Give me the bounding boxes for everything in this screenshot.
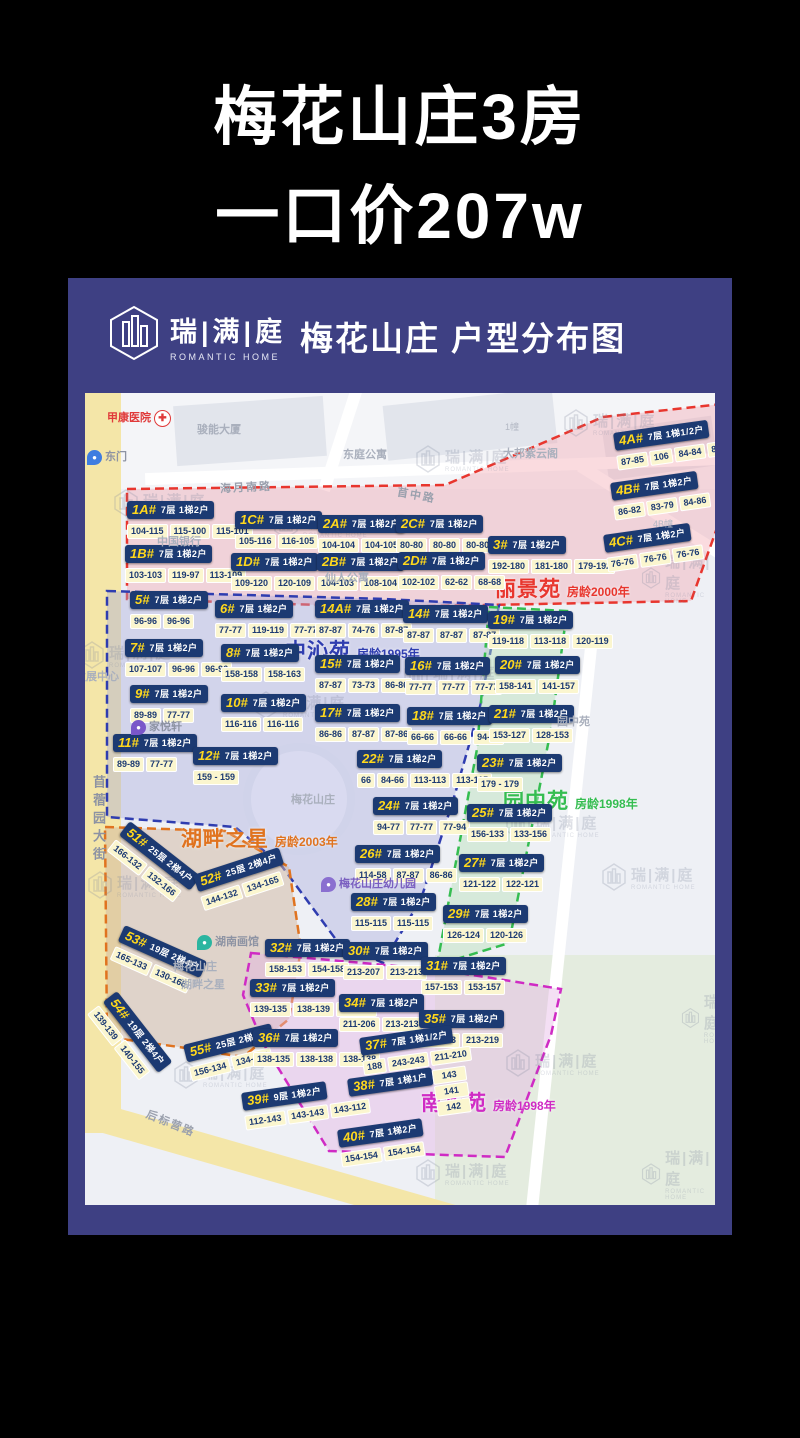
poster-title-line1: 梅花山庄3房 (0, 68, 800, 167)
building-area-cell: 120-119 (572, 634, 613, 649)
map-pin-icon: ● (131, 720, 146, 735)
building-pill: 29#7层 1梯2户 (443, 905, 528, 923)
building-area-cell: 181-180 (531, 559, 572, 574)
building-label: 11#7层 1梯2户89-8977-77 (113, 734, 197, 772)
building-pill: 18#7层 1梯2户 (407, 707, 492, 725)
building-info: 7层 1梯2户 (356, 602, 404, 615)
building-label: 34#7层 1梯2户211-206213-213 (339, 994, 425, 1032)
building-area-cell: 119-97 (168, 568, 204, 583)
building-pill: 36#7层 1梯2户 (253, 1029, 338, 1047)
building-area-cells: 107-10796-9696-96 (125, 659, 234, 677)
building-area-cell: 157-153 (421, 980, 462, 995)
building-label: 19#7层 1梯2户119-118113-118120-119 (488, 611, 615, 649)
building-area-cell: 138-138 (296, 1052, 337, 1067)
building-pill: 32#7层 1梯2户 (265, 939, 350, 957)
building-info: 7层 1梯2户 (475, 907, 523, 920)
screenshot-root: { "page": { "title_line1": "梅花山庄3房", "ti… (0, 0, 800, 1438)
building-number: 26# (360, 846, 382, 861)
building-area-cell: 103-103 (125, 568, 166, 583)
building-info: 7层 1梯2户 (269, 513, 317, 526)
building-area-cell: 121-122 (459, 877, 500, 892)
building-label: 31#7层 1梯2户157-153153-157 (421, 957, 507, 995)
building-number: 1D# (236, 554, 260, 569)
building-pill: 11#7层 1梯2户 (113, 734, 197, 752)
building-area-cell: 119-118 (488, 634, 528, 649)
poi-pin: ●家悦轩 (131, 718, 182, 735)
building-area-cells: 213-207213-213 (343, 962, 429, 980)
building-number: 20# (500, 657, 522, 672)
building-number: 30# (348, 943, 370, 958)
building-pill: 31#7层 1梯2户 (421, 957, 506, 975)
building-area-cell: 96-96 (168, 662, 199, 677)
building-area-cells: 77-7777-7777-77 (405, 677, 504, 695)
building-area-cells: 115-115115-115 (351, 913, 436, 931)
building-area-cell: 77-94 (439, 820, 470, 835)
building-pill: 2C#7层 1梯2户 (396, 515, 483, 533)
building-info: 7层 1梯2户 (453, 959, 501, 972)
building-pill: 5#7层 1梯2户 (130, 591, 208, 609)
building-area-cell: 87-87 (315, 678, 346, 693)
building-area-cell: 66-66 (440, 730, 471, 745)
building-label: 15#7层 1梯2户87-8773-7386-86 (315, 655, 414, 693)
building-area-cell: 115-115 (351, 916, 391, 931)
building-number: 29# (448, 906, 470, 921)
building-info: 7层 1梯2户 (285, 1031, 333, 1044)
building-info: 7层 1梯2户 (491, 856, 539, 869)
building-label: 28#7层 1梯2户115-115115-115 (351, 893, 436, 931)
building-area-cell: 138-139 (293, 1002, 334, 1017)
building-area-cell: 126-124 (443, 928, 484, 943)
poi-text: 1幢 (505, 420, 519, 433)
brand-logo: 瑞|满|庭 ROMANTIC HOME (108, 304, 286, 367)
building-area-cell: 68-68 (474, 575, 505, 590)
building-area-cell: 84-66 (377, 773, 408, 788)
building-number: 7# (130, 640, 144, 655)
building-number: 11# (118, 735, 139, 750)
building-area-cell: 87-87 (436, 628, 467, 643)
building-area-cell: 77-77 (215, 623, 246, 638)
building-area-cell: 116-105 (278, 534, 319, 549)
building-number: 27# (464, 855, 486, 870)
building-number: 18# (412, 708, 434, 723)
building-info: 7层 1梯2户 (509, 756, 557, 769)
building-label: 25#7层 1梯2户156-133133-156 (467, 804, 553, 842)
building-number: 55# (188, 1040, 213, 1060)
building-number: 5# (135, 592, 149, 607)
building-area-cell: 66-66 (407, 730, 438, 745)
building-area-cell: 141-157 (538, 679, 579, 694)
building-info: 7层 1梯2户 (375, 944, 423, 957)
building-info: 7层 1梯2户 (144, 736, 192, 749)
building-number: 36# (258, 1030, 280, 1045)
building-area-cell: 213-207 (343, 965, 384, 980)
building-area-cells: 179 - 179 (477, 774, 562, 792)
poi-kindergarten: ●梅花山庄幼儿园 (321, 875, 416, 892)
building-pill: 20#7层 1梯2户 (495, 656, 580, 674)
card-header: 瑞|满|庭 ROMANTIC HOME 梅花山庄 户型分布图 (68, 278, 732, 393)
building-number: 21# (494, 706, 516, 721)
building-area-cells: 80-8080-8080-80 (396, 535, 495, 553)
building-number: 12# (198, 748, 220, 763)
building-number: 1A# (132, 502, 156, 517)
building-area-cell: 80-80 (396, 538, 427, 553)
building-info: 7层 1梯2户 (351, 555, 399, 568)
building-area-cells: 143141142 (431, 1065, 473, 1118)
map-pin-icon: ● (87, 450, 102, 465)
building-label: 5#7层 1梯2户96-9696-96 (130, 591, 208, 629)
building-info: 7层 1梯2户 (149, 641, 197, 654)
building-area-cell: 119-119 (248, 623, 288, 638)
poi-pin: ●东门 (87, 448, 127, 465)
building-area-cells: 158-153154-158 (265, 959, 351, 977)
building-label: 24#7层 1梯2户94-7777-7777-94 (373, 797, 472, 835)
poi-label: 梅花山庄幼儿园 (339, 878, 416, 890)
building-number: 35# (424, 1011, 446, 1026)
poi-text: 海月南路 (220, 478, 273, 497)
poi-text: 4B幢 (653, 517, 673, 530)
building-number: 17# (320, 705, 342, 720)
poi-hospital: 甲康医院✚ (107, 409, 171, 427)
building-number: 16# (410, 658, 432, 673)
building-pill: 33#7层 1梯2户 (250, 979, 335, 997)
building-pill: 16#7层 1梯2户 (405, 657, 490, 675)
building-label: 6#7层 1梯2户77-77119-11977-77 (215, 600, 323, 638)
building-area-cells: 126-124120-126 (443, 925, 529, 943)
building-number: 6# (220, 601, 234, 616)
building-area-cells: 104-104104-105 (318, 535, 405, 553)
poi-text: 梅花山庄 (291, 791, 335, 807)
building-info: 7层 1梯2户 (347, 706, 395, 719)
building-area-cell: 139-135 (250, 1002, 291, 1017)
building-number: 24# (378, 798, 400, 813)
building-info: 7层 1梯2户 (389, 752, 437, 765)
building-pill: 23#7层 1梯2户 (477, 754, 562, 772)
building-number: 2B# (322, 554, 346, 569)
building-number: 1C# (240, 512, 264, 527)
poi-label: 家悦轩 (149, 721, 182, 733)
building-number: 10# (226, 695, 248, 710)
building-info: 7层 1梯2户 (265, 555, 313, 568)
building-area-cell: 122-121 (502, 877, 543, 892)
building-info: 7层 1梯2户 (527, 658, 575, 671)
building-pill: 19#7层 1梯2户 (488, 611, 573, 629)
building-info: 7层 1梯2户 (347, 657, 395, 670)
building-pill: 30#7层 1梯2户 (343, 942, 428, 960)
building-area-cells: 103-103119-97113-109 (125, 565, 248, 583)
map-pin-icon: ● (197, 935, 212, 950)
building-area-cells: 116-116116-116 (221, 714, 306, 732)
building-pill: 1C#7层 1梯2户 (235, 511, 322, 529)
building-area-cells: 77-77119-11977-77 (215, 620, 323, 638)
building-area-cell: 96-96 (163, 614, 194, 629)
poi-text: 梅花山庄 (173, 958, 217, 974)
building-number: 22# (362, 751, 384, 766)
community-map: 瑞|满|庭ROMANTIC HOME瑞|满|庭ROMANTIC HOME瑞|满|… (85, 393, 715, 1205)
building-area-cell: 77-77 (146, 757, 177, 772)
region-label-lijingyuan: 丽景苑房龄2000年 (495, 573, 630, 603)
hospital-cross-icon: ✚ (154, 410, 171, 427)
building-area-cells: 109-120120-109 (231, 573, 318, 591)
building-area-cells: 86-8687-8787-86 (315, 724, 414, 742)
building-area-cells: 87-8774-7687-87 (315, 620, 414, 638)
building-area-cell: 80-80 (429, 538, 460, 553)
building-label: 30#7层 1梯2户213-207213-213 (343, 942, 429, 980)
poi-pin: ●湖南画馆 (197, 933, 259, 950)
building-label: 7#7层 1梯2户107-10796-9696-96 (125, 639, 234, 677)
building-number: 40# (342, 1127, 366, 1145)
poi-text: 东庭公寓 (343, 446, 387, 462)
map-card: 瑞|满|庭 ROMANTIC HOME 梅花山庄 户型分布图 瑞|满|庭ROMA… (68, 278, 732, 1235)
building-number: 8# (226, 645, 240, 660)
building-area-cell: 128-153 (532, 728, 573, 743)
poi-text: 园中苑 (557, 713, 590, 729)
building-label: 1B#7层 1梯2户103-103119-97113-109 (125, 545, 248, 583)
building-pill: 17#7层 1梯2户 (315, 704, 400, 722)
building-area-cell: 77-77 (405, 680, 436, 695)
card-title: 梅花山庄 户型分布图 (300, 312, 626, 360)
building-area-cell: 86-86 (426, 868, 457, 883)
building-pill: 7#7层 1梯2户 (125, 639, 203, 657)
building-info: 7层 1梯2户 (371, 996, 419, 1009)
building-number: 3# (493, 537, 507, 552)
building-pill: 25#7层 1梯2户 (467, 804, 552, 822)
building-area-cell: 133-156 (510, 827, 551, 842)
building-number: 19# (493, 612, 515, 627)
building-info: 7层 1梯2户 (499, 806, 547, 819)
building-number: 25# (472, 805, 494, 820)
building-info: 7层 1梯2户 (405, 799, 453, 812)
building-info: 7层 1梯2户 (369, 1121, 418, 1141)
building-area-cell: 156-133 (467, 827, 508, 842)
building-info: 7层 1梯2户 (161, 503, 209, 516)
building-area-cell: 113-118 (530, 634, 570, 649)
building-number: 37# (364, 1035, 388, 1053)
building-label: 12#7层 1梯2户159 - 159 (193, 747, 278, 785)
map-pin-icon: ● (321, 877, 336, 892)
building-info: 7层 1梯2户 (520, 613, 568, 626)
building-info: 7层 1梯2户 (512, 538, 560, 551)
building-info: 7层 1梯2户 (432, 554, 480, 567)
building-area-cell: 158-141 (495, 679, 536, 694)
building-area-cells: 94-7777-7777-94 (373, 817, 472, 835)
building-area-cell: 96-96 (130, 614, 161, 629)
building-area-cell: 116-116 (221, 717, 261, 732)
poi-label: 甲康医院 (107, 412, 151, 424)
building-pill: 3#7层 1梯2户 (488, 536, 566, 554)
building-pill: 2A#7层 1梯2户 (318, 515, 405, 533)
building-pill: 6#7层 1梯2户 (215, 600, 293, 618)
building-number: 23# (482, 755, 504, 770)
building-area-cell: 89-89 (113, 757, 144, 772)
building-number: 32# (270, 940, 292, 955)
poi-label: 湖南画馆 (215, 936, 259, 948)
building-pill: 26#7层 1梯2户 (355, 845, 440, 863)
building-pill: 14#7层 1梯2户 (403, 605, 488, 623)
building-label: 2C#7层 1梯2户80-8080-8080-80 (396, 515, 495, 553)
building-pill: 24#7层 1梯2户 (373, 797, 458, 815)
building-area-cell: 116-116 (263, 717, 303, 732)
building-area-cell: 73-73 (348, 678, 379, 693)
poi-text: 湖畔之星 (181, 976, 225, 992)
region-age: 房龄1998年 (493, 1099, 556, 1113)
building-area-cells: 89-8977-77 (113, 754, 197, 772)
building-number: 2A# (323, 516, 347, 531)
building-info: 7层 1梯2户 (225, 749, 273, 762)
building-pill: 10#7层 1梯2户 (221, 694, 306, 712)
building-number: 34# (344, 995, 366, 1010)
building-label: 2A#7层 1梯2户104-104104-105 (318, 515, 405, 553)
building-label: 1C#7层 1梯2户105-116116-105 (235, 511, 322, 549)
poi-text: 中国银行 (157, 533, 201, 549)
brand-hexagon-building-icon (108, 304, 160, 367)
building-area-cell: 153-157 (464, 980, 505, 995)
building-area-cells: 87-8773-7386-86 (315, 675, 414, 693)
building-area-cell: 158-163 (264, 667, 305, 682)
building-label: 17#7层 1梯2户86-8687-8787-86 (315, 704, 414, 742)
building-info: 9层 1梯2户 (273, 1084, 322, 1104)
building-info: 7层 1梯2户 (352, 517, 400, 530)
building-area-cell: 158-158 (221, 667, 262, 682)
poi-text: 大邦紫云阁 (503, 445, 558, 461)
building-area-cells: 121-122122-121 (459, 874, 545, 892)
building-pill: 22#7层 1梯2户 (357, 750, 442, 768)
building-info: 7层 1梯2户 (154, 687, 202, 700)
building-area-cell: 62-62 (441, 575, 472, 590)
building-area-cell: 77-77 (406, 820, 437, 835)
building-area-cell: 102-102 (398, 575, 439, 590)
building-label: 10#7层 1梯2户116-116116-116 (221, 694, 306, 732)
building-area-cell: 138-135 (253, 1052, 294, 1067)
building-area-cell: 87-87 (706, 439, 715, 458)
building-info: 7层 1梯2户 (387, 847, 435, 860)
building-info: 7层 1梯2户 (154, 593, 202, 606)
building-pill: 1D#7层 1梯2户 (231, 553, 318, 571)
building-area-cell: 66 (357, 773, 375, 788)
building-area-cells: 192-180181-180179-192 (488, 556, 617, 574)
building-area-cells: 156-133133-156 (467, 824, 553, 842)
building-label: 16#7层 1梯2户77-7777-7777-77 (405, 657, 504, 695)
building-info: 7层 1梯2户 (297, 941, 345, 954)
building-area-cell: 158-153 (265, 962, 306, 977)
building-area-cell: 120-109 (274, 576, 315, 591)
building-area-cells: 159 - 159 (193, 767, 278, 785)
brand-name-cn: 瑞|满|庭 (170, 310, 286, 349)
building-area-cell: 179 - 179 (477, 777, 523, 792)
building-area-cell: 87-87 (403, 628, 434, 643)
building-info: 7层 1梯2户 (383, 895, 431, 908)
building-area-cell: 94-77 (373, 820, 404, 835)
building-number: 4A# (618, 430, 644, 448)
building-number: 2C# (401, 516, 425, 531)
building-label: 22#7层 1梯2户6684-66113-113113-115 (357, 750, 494, 788)
building-area-cell: 106 (649, 448, 674, 466)
building-area-cell: 105-116 (235, 534, 276, 549)
building-label: 27#7层 1梯2户121-122122-121 (459, 854, 545, 892)
building-info: 7层 1梯2户 (439, 709, 487, 722)
building-area-cells: 102-10262-6268-68 (398, 572, 507, 590)
region-age: 房龄1998年 (575, 797, 638, 811)
brand-name-en: ROMANTIC HOME (170, 352, 286, 362)
building-info: 7层 1梯2户 (253, 696, 301, 709)
poster-title-line2: 一口价207w (0, 167, 800, 266)
building-pill: 34#7层 1梯2户 (339, 994, 424, 1012)
poi-label: 东门 (105, 451, 127, 463)
building-area-cells: 105-116116-105 (235, 531, 322, 549)
building-area-cell: 87-87 (348, 727, 379, 742)
poster-title: 梅花山庄3房 一口价207w (0, 68, 800, 266)
building-info: 7层 1梯2户 (245, 646, 293, 659)
building-number: 33# (255, 980, 277, 995)
building-area-cells: 6684-66113-113113-115 (357, 770, 494, 788)
building-number: 28# (356, 894, 378, 909)
building-area-cell: 153-127 (489, 728, 530, 743)
building-pill: 15#7层 1梯2户 (315, 655, 400, 673)
building-info: 7层 1梯2户 (239, 602, 287, 615)
building-pill: 9#7层 1梯2户 (130, 685, 208, 703)
building-number: 4B# (615, 480, 641, 498)
building-pill: 28#7层 1梯2户 (351, 893, 436, 911)
building-area-cells: 157-153153-157 (421, 977, 507, 995)
building-pill: 27#7层 1梯2户 (459, 854, 544, 872)
building-info: 7层 1梯2户 (282, 981, 330, 994)
building-info: 7层 1梯2户 (435, 607, 483, 620)
building-pill: 8#7层 1梯2户 (221, 644, 299, 662)
building-area-cell: 109-120 (231, 576, 272, 591)
building-area-cell: 115-115 (393, 916, 433, 931)
building-area-cells: 96-9696-96 (130, 611, 208, 629)
building-number: 2D# (403, 553, 427, 568)
building-number: 14A# (320, 601, 351, 616)
building-info: 7层 1梯2户 (437, 659, 485, 672)
building-number: 15# (320, 656, 342, 671)
region-label-hupanzhixing: 湖畔之星房龄2003年 (181, 823, 338, 853)
building-number: 1B# (130, 546, 154, 561)
building-info: 7层 1梯2户 (644, 474, 693, 494)
building-number: 9# (135, 686, 149, 701)
region-age: 房龄2003年 (275, 835, 338, 849)
building-number: 39# (246, 1090, 270, 1108)
building-area-cell: 192-180 (488, 559, 529, 574)
building-pill: 14A#7层 1梯2户 (315, 600, 409, 618)
building-area-cells: 158-158158-163 (221, 664, 307, 682)
building-label: 1D#7层 1梯2户109-120120-109 (231, 553, 318, 591)
building-area-cell: 86-86 (315, 727, 346, 742)
poi-text: 发展中心 (85, 668, 119, 684)
building-area-cell: 87-87 (315, 623, 346, 638)
building-label: 32#7层 1梯2户158-153154-158 (265, 939, 351, 977)
building-area-cell: 120-126 (486, 928, 527, 943)
region-age: 房龄2000年 (567, 585, 630, 599)
building-area-cell: 159 - 159 (193, 770, 239, 785)
building-pill: 2D#7层 1梯2户 (398, 552, 485, 570)
poi-text: 仙人公寓 (325, 569, 369, 585)
poi-text: 骏能大厦 (197, 421, 241, 437)
building-number: 52# (198, 868, 223, 889)
building-number: 31# (426, 958, 448, 973)
building-area-cell: 77-77 (438, 680, 469, 695)
building-area-cell: 104-104 (318, 538, 359, 553)
building-label: 3#7层 1梯2户192-180181-180179-192 (488, 536, 617, 574)
building-label: 29#7层 1梯2户126-124120-126 (443, 905, 529, 943)
building-label: 23#7层 1梯2户179 - 179 (477, 754, 562, 792)
brand-text: 瑞|满|庭 ROMANTIC HOME (170, 310, 286, 362)
building-pill: 1A#7层 1梯2户 (127, 501, 214, 519)
building-area-cells: 158-141141-157 (495, 676, 581, 694)
building-label: 14A#7层 1梯2户87-8774-7687-87 (315, 600, 414, 638)
poi-text: 苜蓿园大街 (89, 775, 108, 865)
building-area-cell: 113-113 (410, 773, 450, 788)
building-pill: 12#7层 1梯2户 (193, 747, 278, 765)
